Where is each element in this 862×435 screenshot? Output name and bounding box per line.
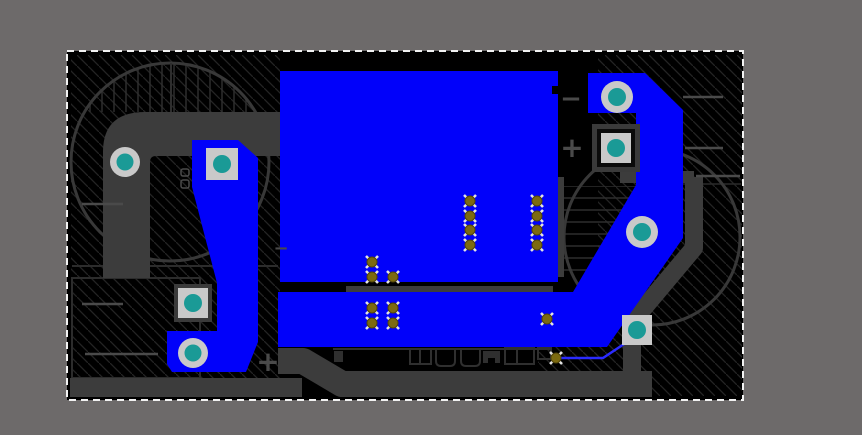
via[interactable] (464, 195, 476, 207)
pad-round-right-mid[interactable] (626, 216, 658, 248)
pad-square-right-bottom[interactable] (622, 315, 652, 345)
pad-round-left-top[interactable] (110, 147, 140, 177)
via[interactable] (531, 224, 543, 236)
top-copper-pour[interactable] (280, 71, 558, 282)
bottom-copper-stub[interactable] (346, 286, 553, 292)
silk-mark-minus-right: − (560, 84, 582, 114)
bottom-copper-band-left[interactable] (70, 378, 302, 397)
pcb-canvas[interactable]: −++− (0, 0, 862, 435)
via[interactable] (531, 210, 543, 222)
silk-mark-plus-bottom-left: + (256, 345, 279, 378)
silk-mark-plus-right: + (560, 131, 583, 164)
via[interactable] (550, 352, 562, 364)
pad-square-left-bottom[interactable] (174, 284, 212, 322)
via[interactable] (387, 271, 399, 283)
via[interactable] (464, 224, 476, 236)
pad-round-left-bottom[interactable] (178, 338, 208, 368)
pad-square-left-top[interactable] (206, 148, 238, 180)
via[interactable] (387, 302, 399, 314)
board-svg: −++− (0, 0, 862, 435)
via[interactable] (366, 302, 378, 314)
pour-notch (552, 86, 558, 94)
via[interactable] (464, 239, 476, 251)
via[interactable] (464, 210, 476, 222)
via[interactable] (541, 313, 553, 325)
pad-round-right-top[interactable] (601, 81, 633, 113)
via[interactable] (366, 256, 378, 268)
via[interactable] (366, 317, 378, 329)
pad-square-right-top[interactable] (592, 124, 640, 172)
via[interactable] (531, 239, 543, 251)
via[interactable] (387, 317, 399, 329)
silk-mark-minus-left: − (273, 238, 288, 259)
via[interactable] (531, 195, 543, 207)
via[interactable] (366, 271, 378, 283)
